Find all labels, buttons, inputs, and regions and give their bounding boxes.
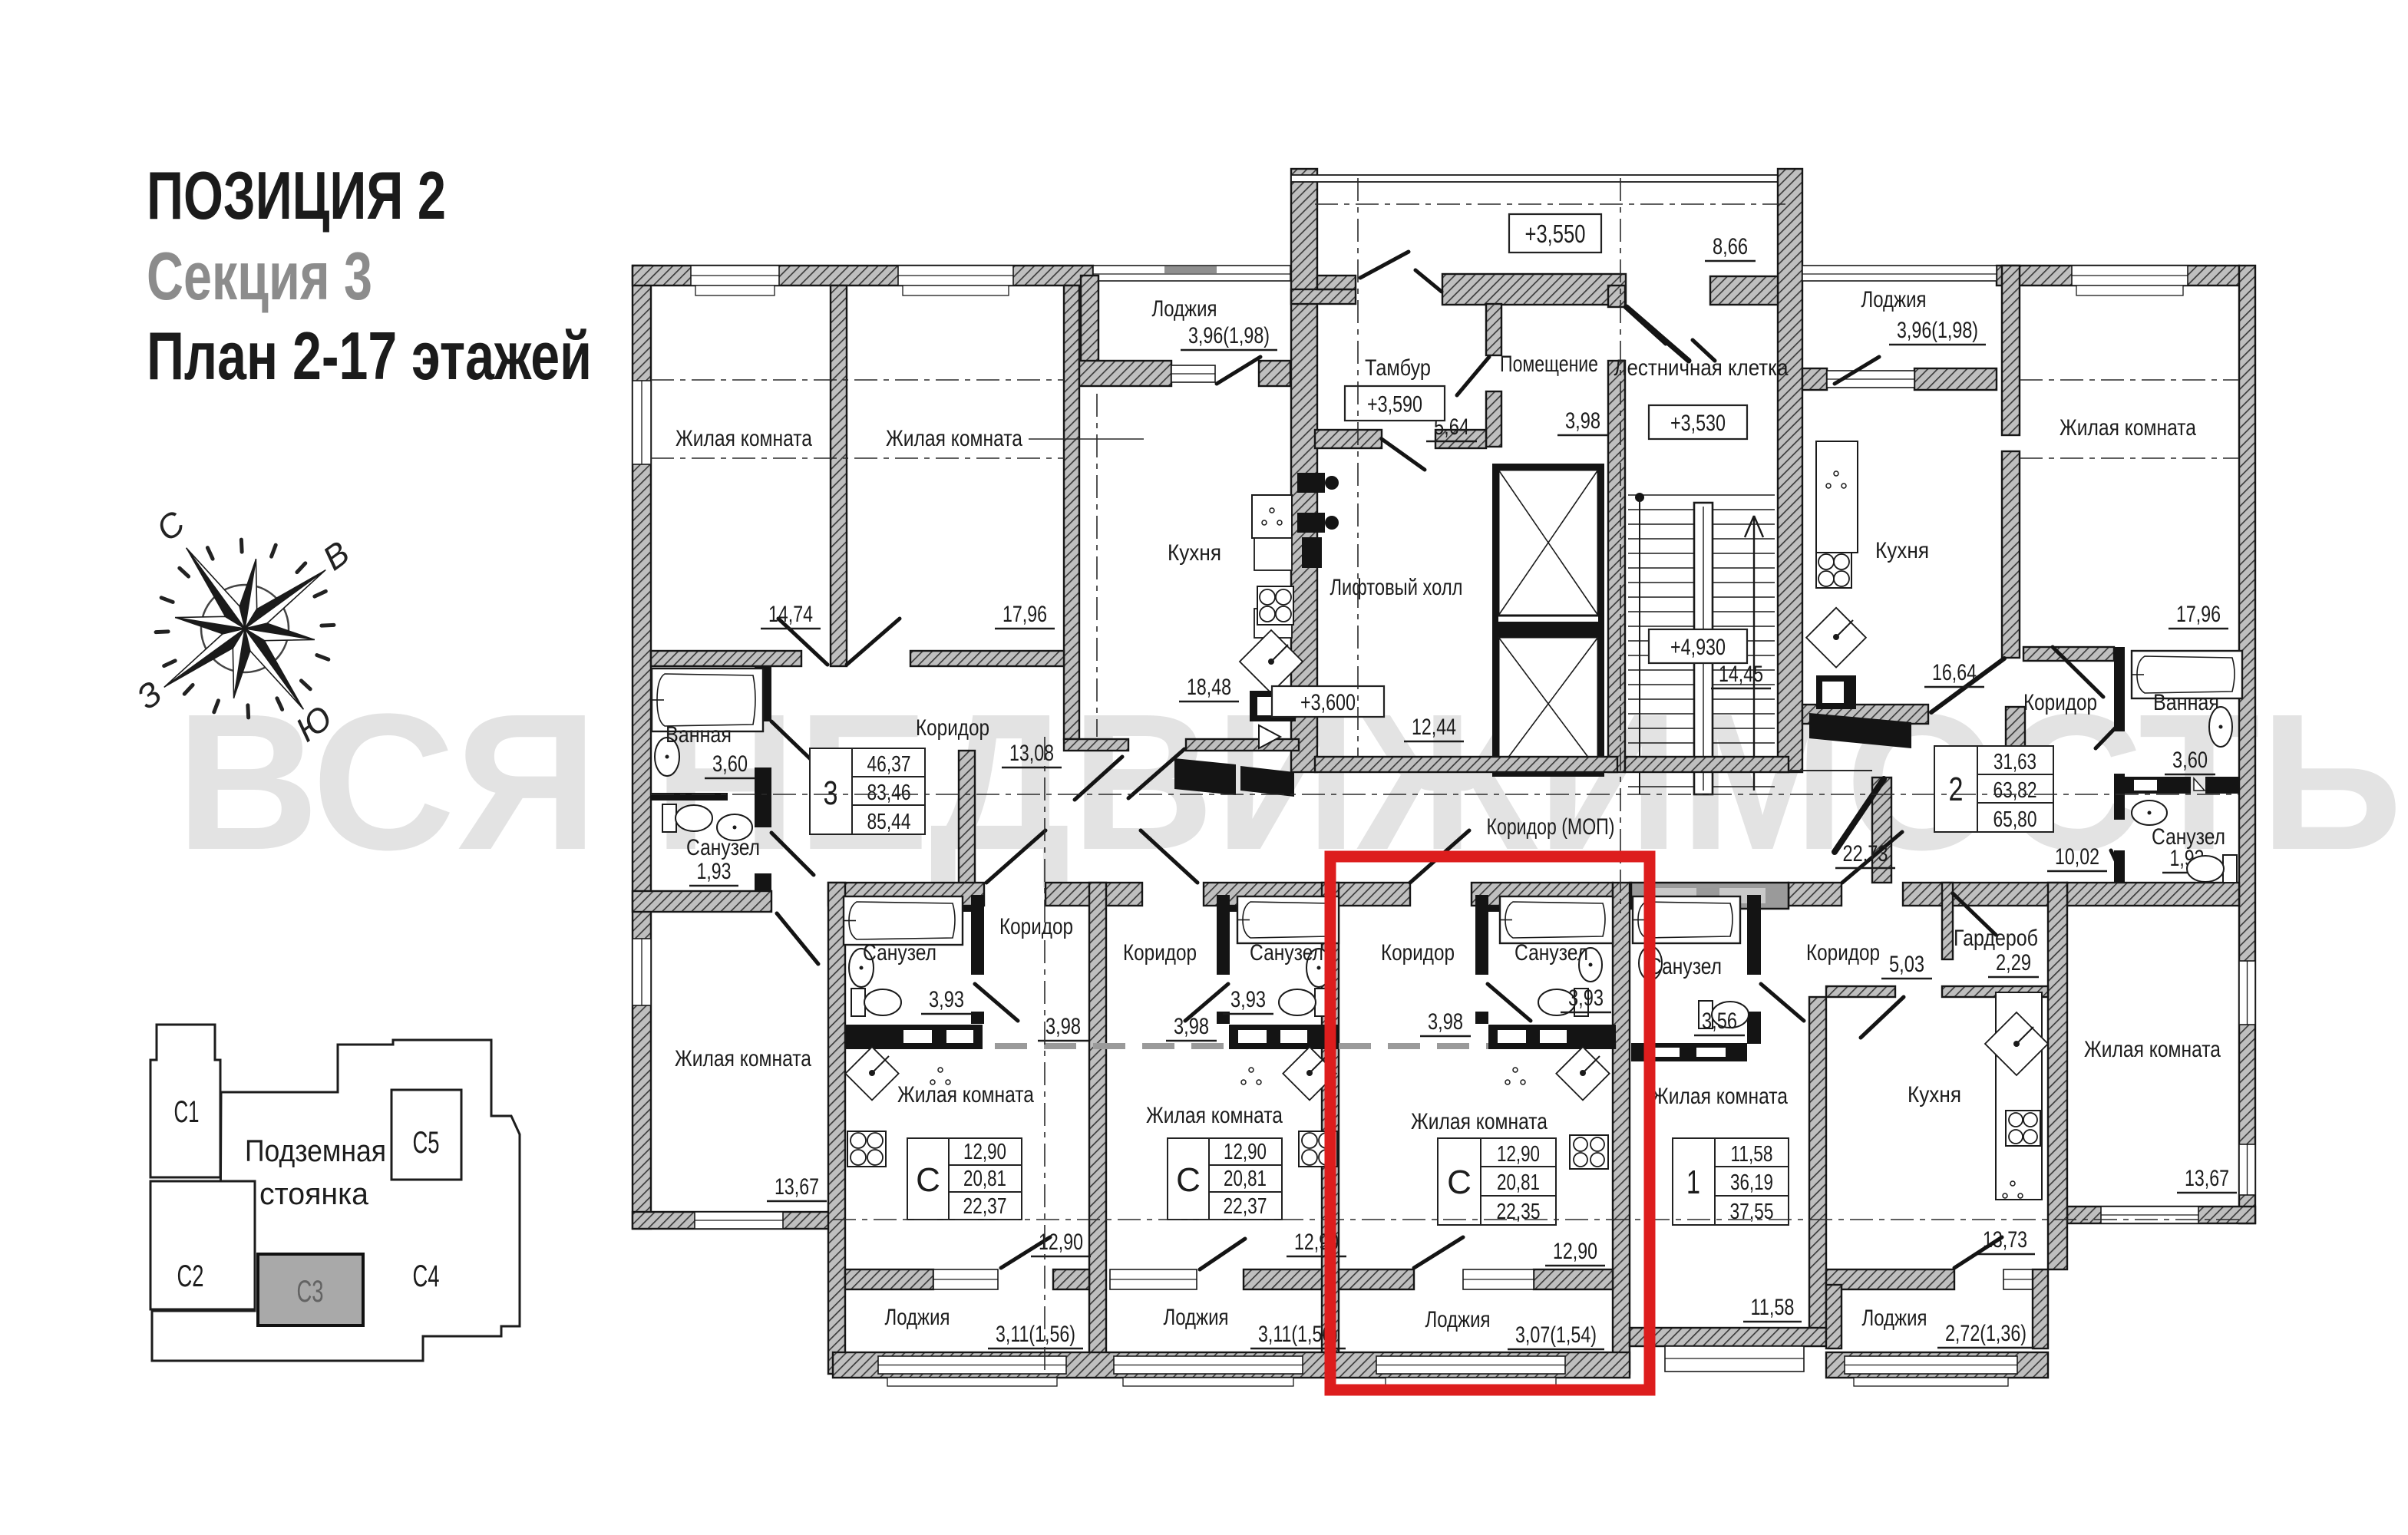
svg-text:Гардероб: Гардероб [1954,926,2038,951]
svg-text:+3,590: +3,590 [1367,391,1422,417]
svg-text:Санузел: Санузел [686,835,760,860]
svg-text:12,90: 12,90 [963,1140,1006,1164]
svg-text:22,35: 22,35 [1497,1200,1541,1224]
svg-text:3,96(1,98): 3,96(1,98) [1897,318,1978,343]
svg-text:+3,600: +3,600 [1300,690,1356,715]
svg-text:13,73: 13,73 [1983,1227,2027,1253]
svg-text:Кухня: Кухня [1908,1082,1961,1108]
svg-text:Жилая комната: Жилая комната [886,426,1022,451]
svg-text:2,29: 2,29 [1996,950,2031,975]
svg-text:20,81: 20,81 [1224,1167,1267,1191]
svg-text:ПОЗИЦИЯ 2: ПОЗИЦИЯ 2 [147,157,446,233]
svg-text:Санузел: Санузел [1514,940,1588,966]
svg-text:11,58: 11,58 [1731,1142,1773,1167]
svg-text:Ванная: Ванная [666,722,732,748]
svg-text:Жилая комната: Жилая комната [675,1046,811,1071]
svg-text:12,90: 12,90 [1553,1239,1597,1264]
svg-text:12,44: 12,44 [1412,715,1456,740]
svg-text:31,63: 31,63 [1993,750,2036,774]
svg-text:Коридор: Коридор [2023,690,2097,715]
svg-text:20,81: 20,81 [963,1167,1006,1191]
svg-text:Жилая комната: Жилая комната [2060,415,2196,441]
svg-text:С4: С4 [413,1259,440,1293]
svg-text:Коридор (МОП): Коридор (МОП) [1487,814,1615,840]
svg-text:Жилая комната: Жилая комната [1146,1103,1283,1128]
svg-text:Жилая комната: Жилая комната [897,1082,1034,1108]
svg-text:63,82: 63,82 [1993,778,2037,803]
svg-text:3: 3 [824,774,838,812]
svg-text:3,60: 3,60 [712,751,748,777]
svg-text:Лифтовый холл: Лифтовый холл [1330,575,1463,600]
svg-text:11,58: 11,58 [1751,1295,1795,1320]
svg-text:12,90: 12,90 [1497,1142,1540,1167]
svg-text:Лоджия: Лоджия [885,1305,950,1330]
svg-text:13,67: 13,67 [775,1174,819,1200]
svg-text:Коридор: Коридор [1806,940,1880,966]
svg-text:С: С [916,1161,940,1199]
svg-text:С1: С1 [174,1095,200,1129]
svg-text:Жилая комната: Жилая комната [2084,1037,2221,1062]
svg-text:37,55: 37,55 [1730,1200,1774,1224]
svg-text:13,67: 13,67 [2185,1166,2229,1191]
svg-text:Жилая комната: Жилая комната [1411,1109,1548,1134]
svg-text:13,08: 13,08 [1009,741,1054,766]
svg-text:Лоджия: Лоджия [1152,296,1217,322]
svg-text:22,37: 22,37 [1224,1194,1267,1219]
svg-text:3,96(1,98): 3,96(1,98) [1188,323,1270,348]
svg-text:Помещение: Помещение [1500,352,1598,377]
svg-text:С: С [1447,1164,1472,1201]
svg-text:Коридор: Коридор [999,914,1073,939]
svg-text:Тамбур: Тамбур [1365,355,1431,381]
svg-text:3,98: 3,98 [1045,1014,1081,1039]
svg-text:10,02: 10,02 [2055,844,2099,870]
svg-text:14,45: 14,45 [1719,662,1763,687]
svg-text:65,80: 65,80 [1993,807,2037,832]
svg-text:стоянка: стоянка [259,1177,369,1211]
svg-text:Лоджия: Лоджия [1862,1306,1927,1331]
svg-text:46,37: 46,37 [867,752,911,777]
svg-text:+4,930: +4,930 [1670,635,1726,660]
svg-text:Лоджия: Лоджия [1164,1305,1229,1330]
svg-text:План 2-17 этажей: План 2-17 этажей [147,318,592,394]
svg-text:18,48: 18,48 [1187,675,1231,700]
svg-text:Коридор: Коридор [1123,940,1197,966]
svg-text:Жилая комната: Жилая комната [1651,1084,1788,1109]
svg-text:2,72(1,36): 2,72(1,36) [1945,1321,2026,1346]
svg-text:83,46: 83,46 [867,781,911,805]
svg-text:1,93: 1,93 [697,859,732,884]
svg-text:Секция 3: Секция 3 [147,238,372,314]
svg-text:3,60: 3,60 [2172,748,2208,773]
svg-text:12,90: 12,90 [1224,1140,1267,1164]
svg-text:С5: С5 [413,1126,440,1160]
svg-text:3,98: 3,98 [1565,408,1600,434]
svg-text:22,73: 22,73 [1843,841,1888,867]
svg-text:8,66: 8,66 [1713,234,1748,259]
svg-text:3,11(1,56): 3,11(1,56) [996,1322,1075,1347]
svg-text:Жилая комната: Жилая комната [675,426,812,451]
svg-text:17,96: 17,96 [2176,602,2221,627]
svg-text:Санузел: Санузел [1250,940,1323,966]
svg-text:36,19: 36,19 [1730,1170,1773,1195]
svg-text:Санузел: Санузел [863,940,936,966]
svg-text:С3: С3 [297,1275,324,1309]
svg-text:5,03: 5,03 [1889,952,1924,977]
svg-text:2: 2 [1949,771,1964,808]
svg-text:17,96: 17,96 [1003,602,1047,627]
svg-text:Санузел: Санузел [1648,954,1722,979]
svg-text:3,07(1,54): 3,07(1,54) [1515,1322,1597,1348]
svg-text:16,64: 16,64 [1932,660,1977,685]
svg-text:20,81: 20,81 [1497,1170,1540,1195]
svg-text:3,93: 3,93 [929,987,964,1012]
svg-text:3,93: 3,93 [1230,987,1266,1012]
svg-text:С2: С2 [177,1259,204,1293]
svg-text:3,98: 3,98 [1174,1014,1209,1039]
svg-text:3,93: 3,93 [1568,985,1604,1011]
svg-text:Лоджия: Лоджия [1425,1307,1491,1332]
svg-text:С: С [1176,1161,1201,1199]
svg-text:3,56: 3,56 [1702,1008,1737,1034]
svg-text:22,37: 22,37 [963,1194,1007,1219]
svg-text:+3,550: +3,550 [1525,220,1586,248]
svg-text:85,44: 85,44 [867,810,911,834]
svg-text:14,74: 14,74 [768,602,813,627]
svg-text:Лоджия: Лоджия [1861,287,1927,312]
svg-text:+3,530: +3,530 [1670,411,1726,436]
svg-text:Лестничная клетка: Лестничная клетка [1614,355,1789,381]
svg-text:Коридор: Коридор [916,715,989,741]
svg-text:Кухня: Кухня [1875,538,1929,563]
svg-text:Подземная: Подземная [245,1134,386,1168]
svg-text:1: 1 [1686,1164,1700,1201]
svg-text:Кухня: Кухня [1168,540,1221,566]
svg-text:Ванная: Ванная [2153,690,2219,715]
svg-text:Коридор: Коридор [1381,940,1455,966]
svg-text:3,98: 3,98 [1428,1009,1463,1035]
